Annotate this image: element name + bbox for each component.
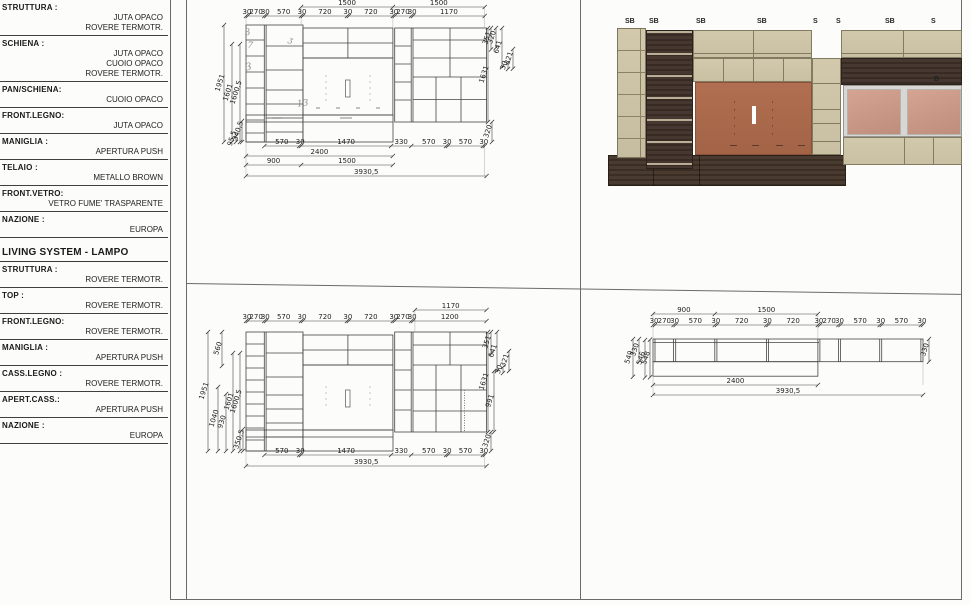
spec-group: NAZIONE :EUROPA	[0, 419, 168, 444]
spec-label: CASS.LEGNO :	[2, 368, 166, 379]
dim-label: 30	[917, 317, 926, 325]
spec-value: CUOIO OPACO	[2, 59, 166, 69]
render-tv-slot	[752, 106, 756, 124]
dim-label: 1500	[430, 0, 448, 7]
cabinet-code-label: SB	[649, 18, 659, 25]
dim-label: 30	[296, 138, 305, 146]
living-system-rows: STRUTTURA :ROVERE TERMOTR.TOP :ROVERE TE…	[0, 263, 168, 444]
render-left-bookcase	[617, 28, 646, 158]
front-elevation-drawing-b: 3027030570307203072030270301200117057030…	[186, 295, 520, 485]
spec-group: FRONT.VETRO:VETRO FUME' TRASPARENTE	[0, 187, 168, 212]
dim-label: 570	[277, 8, 290, 16]
render-side-label: B	[934, 76, 939, 83]
dim-label: 30	[408, 8, 417, 16]
dim-label: 1500	[338, 0, 356, 7]
cabinet-code-label: SB	[625, 18, 635, 25]
render-center-top-cabinets	[693, 30, 812, 58]
spec-group: MANIGLIA :APERTURA PUSH	[0, 341, 168, 366]
spec-group: STRUTTURA :JUTA OPACOROVERE TERMOTR.	[0, 1, 168, 36]
vertical-divider-line	[580, 0, 581, 599]
dim-label: 570	[459, 138, 472, 146]
dim-label: 30	[261, 8, 270, 16]
spec-label: PAN/SCHIENA:	[2, 84, 166, 95]
dim-label: 30	[298, 313, 307, 321]
dim-label: ʒ	[286, 34, 295, 45]
dim-label: 30	[443, 447, 452, 455]
spec-value: EUROPA	[2, 225, 166, 235]
dim-label: 7	[247, 41, 254, 51]
dim-label: 3930,5	[354, 168, 379, 176]
dim-label: 1470	[337, 447, 355, 455]
dim-label: 13	[297, 98, 310, 109]
dim-label: 330	[394, 138, 407, 146]
spec-value: ROVERE TERMOTR.	[2, 327, 166, 337]
spec-group: SCHIENA :JUTA OPACOCUOIO OPACOROVERE TER…	[0, 37, 168, 82]
dim-label: 570	[422, 447, 435, 455]
spec-group: NAZIONE :EUROPA	[0, 213, 168, 238]
spec-block-living-system: LIVING SYSTEM - LAMPO STRUTTURA :ROVERE …	[0, 246, 168, 445]
spec-label: TOP :	[2, 290, 166, 301]
dim-label: 720	[318, 313, 331, 321]
dim-label: 570	[275, 447, 288, 455]
dim-label: 570	[277, 313, 290, 321]
dim-label: 720	[364, 8, 377, 16]
plan-view-drawing: 9001500302703057030720307203027030570305…	[620, 295, 965, 405]
spec-group: FRONT.LEGNO:ROVERE TERMOTR.	[0, 315, 168, 340]
render-right-dark-band	[841, 58, 962, 85]
dim-label: 30	[711, 317, 720, 325]
dim-label: 570	[853, 317, 866, 325]
render-glass-pane-right	[907, 89, 961, 135]
living-system-title: LIVING SYSTEM - LAMPO	[0, 246, 168, 262]
dim-label: 30	[296, 447, 305, 455]
dim-label: 720	[318, 8, 331, 16]
render-narrow-column	[812, 58, 841, 155]
dim-label: 3	[244, 28, 251, 39]
dim-label: 30	[443, 138, 452, 146]
spec-block-finishes: STRUTTURA :JUTA OPACOROVERE TERMOTR.SCHI…	[0, 1, 168, 239]
dim-label: 570	[895, 317, 908, 325]
dim-label: 30	[298, 8, 307, 16]
spec-group: MANIGLIA :APERTURA PUSH	[0, 135, 168, 160]
spec-value: METALLO BROWN	[2, 173, 166, 183]
dim-label: 3	[244, 62, 252, 74]
spec-label: FRONT.LEGNO:	[2, 316, 166, 327]
dim-label: 30	[408, 313, 417, 321]
dim-label: 570	[275, 138, 288, 146]
spec-value: ROVERE TERMOTR.	[2, 275, 166, 285]
dim-label: 1170	[442, 302, 460, 310]
spec-label: MANIGLIA :	[2, 342, 166, 353]
dim-label: 720	[786, 317, 799, 325]
dim-label: 570	[422, 138, 435, 146]
dim-label: 2400	[727, 377, 745, 385]
dim-label: 30	[261, 313, 270, 321]
sidebar-divider-line	[170, 0, 171, 599]
spec-value: CUOIO OPACO	[2, 95, 166, 105]
spec-label: NAZIONE :	[2, 214, 166, 225]
dim-label: 3930,5	[776, 387, 801, 395]
spec-group: FRONT.LEGNO:JUTA OPACO	[0, 109, 168, 134]
render-center-cabinet-row	[693, 58, 812, 82]
dim-label: 900	[677, 306, 690, 314]
spec-value: APERTURA PUSH	[2, 147, 166, 157]
dim-label: 270	[823, 317, 836, 325]
dim-label: 30	[670, 317, 679, 325]
spec-label: STRUTTURA :	[2, 2, 166, 13]
render-right-top-cabinets	[841, 30, 962, 58]
dim-label: 1631	[478, 372, 491, 391]
spec-value: JUTA OPACO	[2, 121, 166, 131]
scanned-spec-sheet: STRUTTURA :JUTA OPACOROVERE TERMOTR.SCHI…	[0, 0, 970, 605]
spec-label: MANIGLIA :	[2, 136, 166, 147]
spec-value: ROVERE TERMOTR.	[2, 69, 166, 79]
cabinet-code-label: SB	[696, 18, 706, 25]
spec-group: TOP :ROVERE TERMOTR.	[0, 289, 168, 314]
spec-value: ROVERE TERMOTR.	[2, 301, 166, 311]
cabinet-code-label: SB	[885, 18, 895, 25]
spec-label: FRONT.LEGNO:	[2, 110, 166, 121]
dim-label: 340,5	[231, 120, 245, 142]
dim-label: 30	[479, 138, 488, 146]
render-glass-pane-left	[847, 89, 901, 135]
spec-group: CASS.LEGNO :ROVERE TERMOTR.	[0, 367, 168, 392]
dim-label: 570	[459, 447, 472, 455]
dim-label: 350,5	[232, 429, 246, 451]
spec-value: VETRO FUME' TRASPARENTE	[2, 199, 166, 209]
spec-label: FRONT.VETRO:	[2, 188, 166, 199]
spec-group: APERT.CASS.:APERTURA PUSH	[0, 393, 168, 418]
dim-label: 330	[394, 447, 407, 455]
cabinet-code-label: SB	[757, 18, 767, 25]
front-elevation-drawing-a: 3027030570307203072030270301170150015005…	[186, 0, 520, 200]
render-dark-wood-column	[646, 30, 693, 169]
spec-value: JUTA OPACO	[2, 49, 166, 59]
dim-label: 1500	[757, 306, 775, 314]
frame-bottom-line	[170, 599, 962, 600]
cabinet-code-label: S	[931, 18, 936, 25]
dim-label: 1500	[338, 157, 356, 165]
spec-value: APERTURA PUSH	[2, 405, 166, 415]
dim-label: 270	[658, 317, 671, 325]
spec-value: ROVERE TERMOTR.	[2, 379, 166, 389]
dim-label: 3930,5	[354, 458, 379, 466]
spec-label: STRUTTURA :	[2, 264, 166, 275]
spec-value: ROVERE TERMOTR.	[2, 23, 166, 33]
render-glass-doors	[843, 85, 962, 137]
spec-value: APERTURA PUSH	[2, 353, 166, 363]
spec-group: PAN/SCHIENA:CUOIO OPACO	[0, 83, 168, 108]
dim-label: 30	[763, 317, 772, 325]
spec-group: TELAIO :METALLO BROWN	[0, 161, 168, 186]
dim-label: 30	[343, 8, 352, 16]
spec-sidebar: STRUTTURA :JUTA OPACOROVERE TERMOTR.SCHI…	[0, 0, 168, 605]
dim-label: 1170	[440, 8, 458, 16]
spec-value: JUTA OPACO	[2, 13, 166, 23]
dim-label: 1200	[441, 313, 459, 321]
horizontal-divider-line	[186, 283, 961, 295]
spec-label: APERT.CASS.:	[2, 394, 166, 405]
dim-label: 1470	[337, 138, 355, 146]
dim-label: 1631	[478, 65, 491, 84]
dim-label: 30	[343, 313, 352, 321]
spec-group: STRUTTURA :ROVERE TERMOTR.	[0, 263, 168, 288]
cabinet-code-label: S	[813, 18, 818, 25]
spec-label: TELAIO :	[2, 162, 166, 173]
render-plinth	[608, 155, 846, 186]
spec-label: NAZIONE :	[2, 420, 166, 431]
dim-label: 570	[689, 317, 702, 325]
color-render: SBSBSBSBSSSBS B	[608, 12, 968, 192]
spec-value: EUROPA	[2, 431, 166, 441]
render-terracotta-back-panel	[695, 82, 812, 155]
dim-label: 2400	[311, 148, 329, 156]
spec-label: SCHIENA :	[2, 38, 166, 49]
dim-label: 720	[364, 313, 377, 321]
dim-label: 30	[835, 317, 844, 325]
dim-label: 30	[876, 317, 885, 325]
dim-label: 720	[735, 317, 748, 325]
cabinet-code-label: S	[836, 18, 841, 25]
render-right-bottom-cabinets	[843, 137, 962, 165]
dim-label: 1951	[198, 381, 211, 400]
dim-label: 900	[267, 157, 280, 165]
